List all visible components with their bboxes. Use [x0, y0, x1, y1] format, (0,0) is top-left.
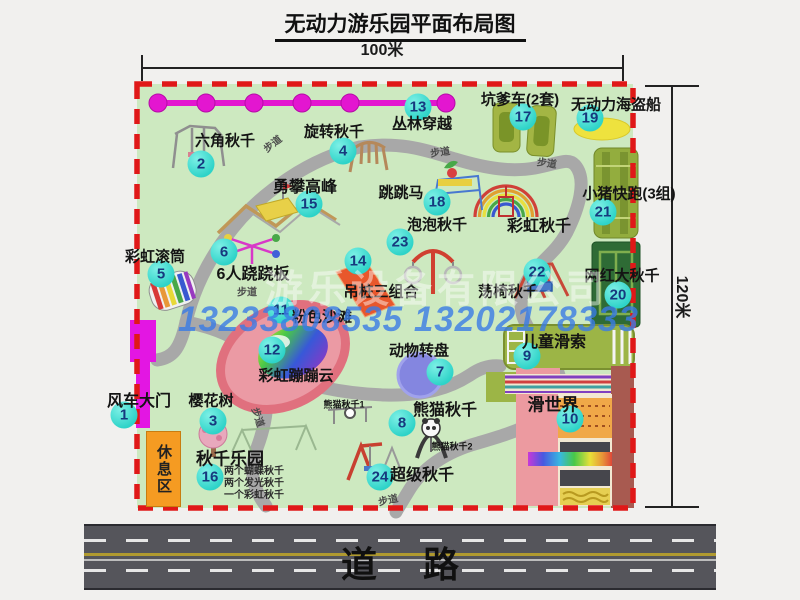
zipline-icon [504, 325, 634, 369]
pirate-ship-icon [574, 118, 630, 140]
road: 道路 [84, 524, 716, 590]
width-dimension-label: 100米 [361, 36, 404, 60]
screenshot-stage: 无动力游乐园平面布局图 100米 120米 [0, 0, 800, 600]
rest-area: 休息区 [146, 431, 181, 507]
road-label: 道路 [84, 536, 716, 588]
height-dimension-label: 120米 [672, 276, 696, 319]
page-title: 无动力游乐园平面布局图 [0, 8, 800, 38]
animal-carousel-icon [398, 353, 442, 397]
